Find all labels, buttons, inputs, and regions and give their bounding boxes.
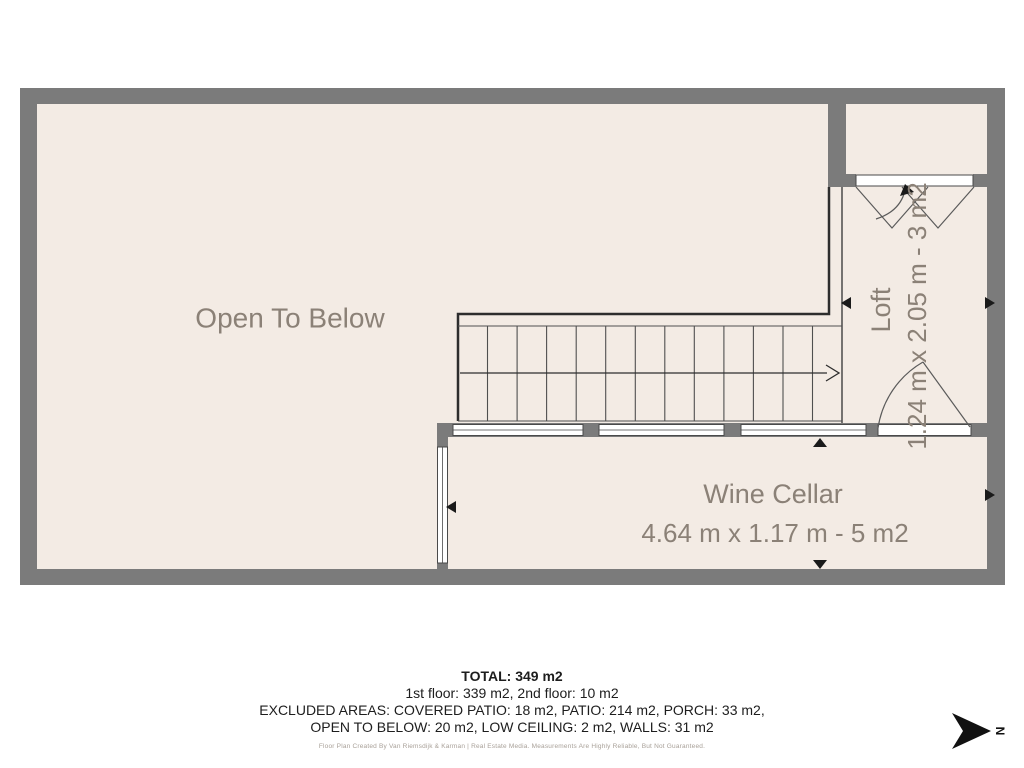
label-loft: Loft bbox=[866, 287, 896, 333]
wall-top bbox=[20, 88, 1005, 104]
wall-left bbox=[20, 88, 37, 585]
wall-stub-bottom bbox=[437, 563, 448, 570]
floor-plan-drawing: Open To Below Wine Cellar 4.64 m x 1.17 … bbox=[0, 0, 1024, 768]
wall-alcove-left bbox=[828, 100, 846, 187]
window-under-stairs-1 bbox=[453, 425, 583, 436]
label-wine-cellar: Wine Cellar bbox=[703, 479, 843, 509]
summary-excluded-1: EXCLUDED AREAS: COVERED PATIO: 18 m2, PA… bbox=[0, 702, 1024, 719]
summary-floors: 1st floor: 339 m2, 2nd floor: 10 m2 bbox=[0, 685, 1024, 702]
wall-bottom bbox=[20, 569, 1005, 585]
window-under-stairs-2 bbox=[599, 425, 724, 436]
floor-plan-page: Open To Below Wine Cellar 4.64 m x 1.17 … bbox=[0, 0, 1024, 768]
summary-total: TOTAL: 349 m2 bbox=[0, 668, 1024, 685]
wall-alcove-bottom-left bbox=[828, 174, 856, 187]
window-wine-cellar-left bbox=[438, 447, 448, 563]
window-under-stairs-3 bbox=[741, 425, 866, 436]
summary-excluded-2: OPEN TO BELOW: 20 m2, LOW CEILING: 2 m2,… bbox=[0, 719, 1024, 736]
label-open-to-below: Open To Below bbox=[195, 303, 385, 334]
wall-stub-top bbox=[437, 423, 448, 447]
label-wine-cellar-dimensions: 4.64 m x 1.17 m - 5 m2 bbox=[641, 518, 908, 548]
wall-alcove-bottom-right bbox=[973, 174, 987, 187]
wall-right bbox=[987, 88, 1005, 585]
creator-credit: Floor Plan Created By Van Riemsdijk & Ka… bbox=[0, 743, 1024, 750]
area-summary: TOTAL: 349 m2 1st floor: 339 m2, 2nd flo… bbox=[0, 668, 1024, 750]
label-loft-dimensions: 1.24 m x 2.05 m - 3 m2 bbox=[902, 182, 932, 449]
